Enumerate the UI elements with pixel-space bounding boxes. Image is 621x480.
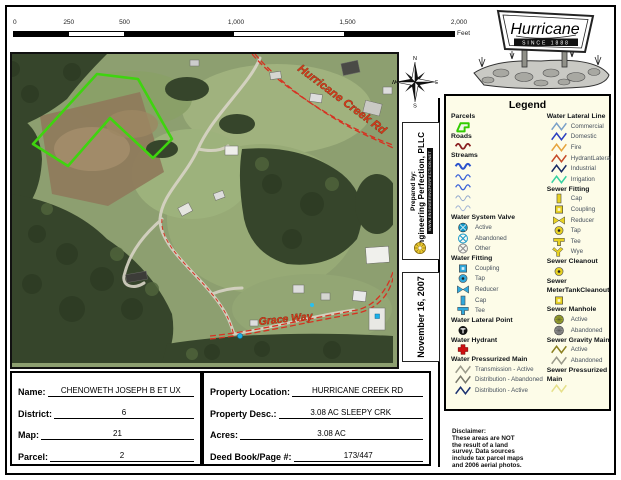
legend-item-parcels [451,121,543,132]
form-row-district: District:6 [18,398,194,419]
legend-item-water-hydrant [451,345,543,356]
map-sheet: Feet 02505001,0001,5002,000 [0,0,621,480]
legend-item-label: Active [571,346,588,353]
form-row-name: Name:CHENOWETH JOSEPH B ET UX [18,376,194,397]
compass-w-label: W [392,80,397,86]
irrigation-icon [549,173,571,186]
legend-item-abandoned: Abandoned [547,325,612,336]
legend-item-abandoned: Abandoned [547,355,612,366]
disclaimer-text: Disclaimer:These areas are NOTthe result… [452,429,610,470]
legend-item-streams [451,203,543,214]
legend-title: Legend [451,99,604,111]
form-value: 2 [50,451,194,462]
form-row-property-desc: Property Desc.:3.08 AC SLEEPY CRK [210,398,423,419]
form-value: 3.08 AC [240,429,423,440]
legend-item-label: Domestic [571,133,597,140]
prepared-by-company: Engineering Perfection, PLLC [417,132,426,251]
map-date: November 16, 2007 [416,276,426,358]
legend-item-label: Irrigation [571,176,595,183]
form-value: 3.08 AC SLEEPY CRK [279,408,423,419]
compass-main-star [395,62,435,102]
logo-landscape [474,49,609,89]
date-box: November 16, 2007 [402,272,440,362]
scale-tick-1000: 1,000 [228,19,244,26]
prepared-by-website: WWW.ENGINEERINGPERFECTION.NET [427,148,433,234]
form-label: Deed Book/Page #: [210,452,294,462]
prepared-by-box: Prepared by: Engineering Perfection, PLL… [402,122,440,260]
legend-item-label: Fire [571,144,582,151]
legend-item-sewer-metertankcleanout [547,295,612,306]
water-lateral-point-icon [453,324,475,337]
form-label: Name: [18,387,48,397]
legend-item-label: Abandoned [475,235,507,242]
legend-item-sewer-pressurized-main [547,384,612,395]
form-value: 173/447 [294,451,423,462]
aerial-photo: Hurricane Creek Rd Grace Way [12,54,393,363]
legend-item-wye: Wye [547,247,612,258]
scale-tick-0: 0 [13,19,17,26]
legend-item-label: Active [571,316,588,323]
form-label: District: [18,409,54,419]
legend-item-tee: Tee [451,305,543,316]
disclaimer-line: and 2006 aerial photos. [452,463,610,470]
form-value: HURRICANE CREEK RD [292,386,423,397]
prepared-by-prefix: Prepared by: [410,171,417,211]
legend-item-sewer-cleanout [547,266,612,277]
legend-item-label: Tee [475,307,485,314]
sewer-cleanout-icon [549,265,571,278]
legend-item-label: Tap [475,275,485,282]
map-viewport: Hurricane Creek Rd Grace Way [10,52,399,369]
legend-item-label: Tap [571,227,581,234]
abandoned-icon [549,324,571,337]
legend-item-label: Abandoned [571,357,603,364]
form-label: Property Location: [210,387,292,397]
scale-tick-1500: 1,500 [339,19,355,26]
legend-item-label: Wye [571,248,583,255]
owner-info-box: Name:CHENOWETH JOSEPH B ET UXDistrict:6M… [10,371,202,466]
form-row-parcel: Parcel:2 [18,441,194,462]
parcels-icon [453,120,475,133]
distribution-active-icon [453,384,475,397]
form-value: 6 [54,408,194,419]
compass-s-label: S [413,104,417,109]
legend-item-label: Abandoned [571,327,603,334]
legend-item-distribution-active: Distribution - Active [451,385,543,396]
legend-item-label: Cap [475,297,486,304]
legend-column-left: ParcelsRoadsStreamsWater System ValveAct… [451,112,543,396]
property-info-box: Property Location:HURRICANE CREEK RDProp… [202,371,431,466]
scale-bar: Feet 02505001,0001,5002,000 [13,17,459,41]
logo-tagline: SINCE 1888 [522,41,570,47]
form-row-property-location: Property Location:HURRICANE CREEK RD [210,376,423,397]
legend-item-label: Transmission - Active [475,366,534,373]
legend-item-label: Active [475,224,492,231]
legend-item-label: Other [475,245,490,252]
compass-n-label: N [413,56,417,62]
legend-panel: Legend ParcelsRoadsStreamsWater System V… [444,94,611,411]
form-row-acres: Acres:3.08 AC [210,419,423,440]
legend-item-label: Coupling [475,265,499,272]
form-label: Parcel: [18,452,50,462]
legend-column-right: Water Lateral LineCommercialDomesticFire… [547,112,612,396]
legend-item-label: Tee [571,238,581,245]
legend-item-water-lateral-point [451,325,543,336]
city-logo: Hurricane SINCE 1888 [466,7,616,97]
scale-tick-250: 250 [63,19,74,26]
scale-bar-segments [13,31,455,37]
form-label: Acres: [210,430,240,440]
legend-item-label: Commercial [571,123,604,130]
legend-item-label: Industrial [571,165,596,172]
legend-section-sewer-metertankcleanout: Sewer MeterTankCleanout [547,277,612,295]
legend-section-sewer-pressurized-main: Sewer Pressurized Main [547,366,612,384]
form-row-map: Map:21 [18,419,194,440]
legend-item-label: Reducer [475,286,498,293]
scale-tick-500: 500 [119,19,130,26]
legend-item-label: Coupling [571,206,595,213]
legend-item-label: Distribution - Abandoned [475,376,543,383]
abandoned-icon [549,354,571,367]
sewer-pressurized-main-icon [549,382,571,395]
form-value: CHENOWETH JOSEPH B ET UX [48,386,194,397]
scale-tick-2000: 2,000 [451,19,467,26]
form-label: Property Desc.: [210,409,279,419]
legend-item-label: Reducer [571,217,594,224]
form-label: Map: [18,430,41,440]
legend-item-label: Distribution - Active [475,387,528,394]
logo-name: Hurricane [510,21,579,38]
legend-item-roads [451,141,543,152]
legend-item-irrigation: Irrigation [547,174,612,185]
legend-item-label: HydrantLateral [571,155,612,162]
form-row-deed-book-page: Deed Book/Page #:173/447 [210,441,423,462]
sun-icon [413,241,427,255]
compass-e-label: E [435,80,438,86]
form-value: 21 [41,429,194,440]
legend-item-other: Other [451,243,543,254]
north-arrow-compass: N E S W [392,54,438,113]
legend-item-label: Cap [571,195,582,202]
